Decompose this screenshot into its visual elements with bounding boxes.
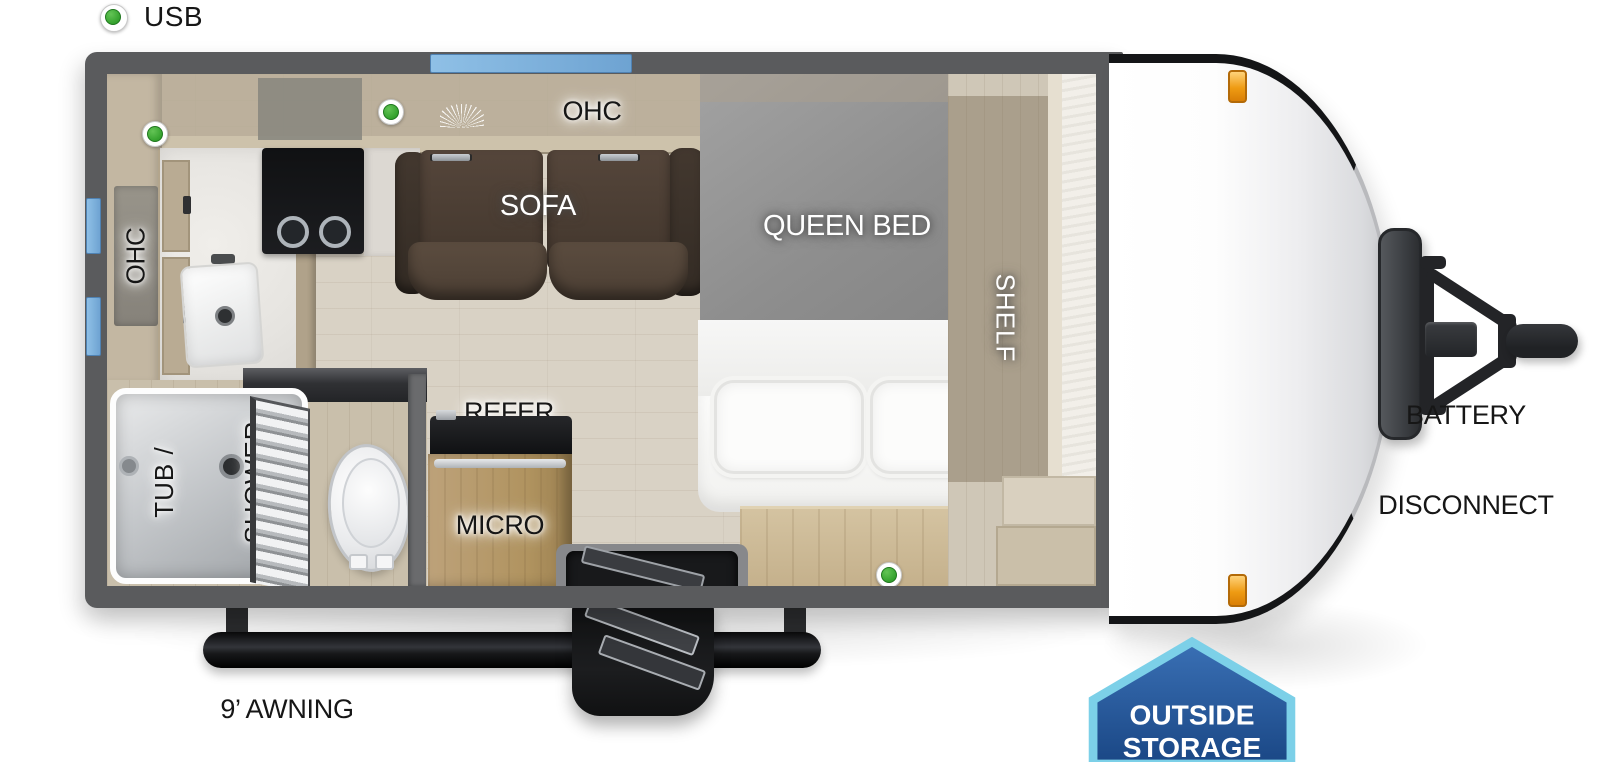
window-top-galley [430, 54, 632, 73]
rv-floorplan-canvas: USB 9’ AWNING OHC [0, 0, 1600, 762]
cooktop-burner-right [319, 216, 351, 248]
awning-label: 9’ AWNING [220, 695, 353, 725]
fridge-hinge [436, 410, 456, 420]
bathroom-right-wall [408, 374, 426, 586]
front-inner-wall [1096, 74, 1109, 586]
marker-light-top [1228, 70, 1247, 103]
sofa-bracket-right [600, 154, 638, 161]
decor-fan [440, 104, 484, 128]
usb-legend-dot [100, 4, 128, 32]
tub-shower-label-line1: TUB / [149, 421, 179, 544]
sink-drain [215, 306, 235, 326]
sofa-seat-cushion-left [408, 242, 547, 300]
battery-disconnect-label: BATTERY DISCONNECT [1378, 340, 1554, 580]
toilet-seat-inner [342, 458, 400, 548]
front-step-lower [996, 526, 1096, 586]
cooktop-burner-left [277, 216, 309, 248]
trailer-body: OHC TUB / SHOWER REFER [85, 52, 1123, 608]
louvered-door [250, 396, 310, 595]
battery-disconnect-line2: DISCONNECT [1378, 490, 1554, 520]
usb-dot-bedroom [876, 562, 902, 588]
front-step-upper [1002, 476, 1096, 526]
fridge-top [430, 416, 572, 454]
micro-trim-bar [434, 459, 566, 468]
usb-dot-kitchen [142, 121, 168, 147]
battery-disconnect-line1: BATTERY [1378, 400, 1554, 430]
galley-ohc-label: OHC [562, 97, 621, 127]
bed-platform [700, 74, 950, 336]
sofa-label: SOFA [500, 191, 576, 223]
front-cap [1109, 54, 1393, 624]
usb-legend-label: USB [144, 2, 203, 33]
sofa-seat-cushion-right [549, 242, 688, 300]
storage-badge-line2: STORAGE [1123, 732, 1262, 762]
window-rear-lower [86, 297, 101, 356]
kitchen-ohc-label: OHC [122, 228, 151, 285]
pillow-left [714, 380, 864, 474]
toilet-hinge-left [349, 554, 368, 570]
hitch-stub-top [1420, 256, 1446, 269]
sofa-bracket-left [432, 154, 470, 161]
vanity-door-handle-upper [183, 196, 191, 214]
storage-badge-line1: OUTSIDE [1130, 699, 1255, 730]
awning-tube [203, 632, 821, 668]
micro-label: MICRO [456, 511, 545, 541]
bed-platform-top-shade [700, 74, 950, 102]
shelf-label: SHELF [991, 274, 1020, 363]
queen-bed-label: QUEEN BED [763, 211, 931, 243]
range-hood [258, 78, 362, 140]
marker-light-bottom [1228, 574, 1247, 607]
toilet-hinge-right [375, 554, 394, 570]
outside-storage-badge: OUTSIDE STORAGE [1085, 637, 1299, 762]
usb-dot-galley [378, 99, 404, 125]
window-rear-upper [86, 198, 101, 254]
